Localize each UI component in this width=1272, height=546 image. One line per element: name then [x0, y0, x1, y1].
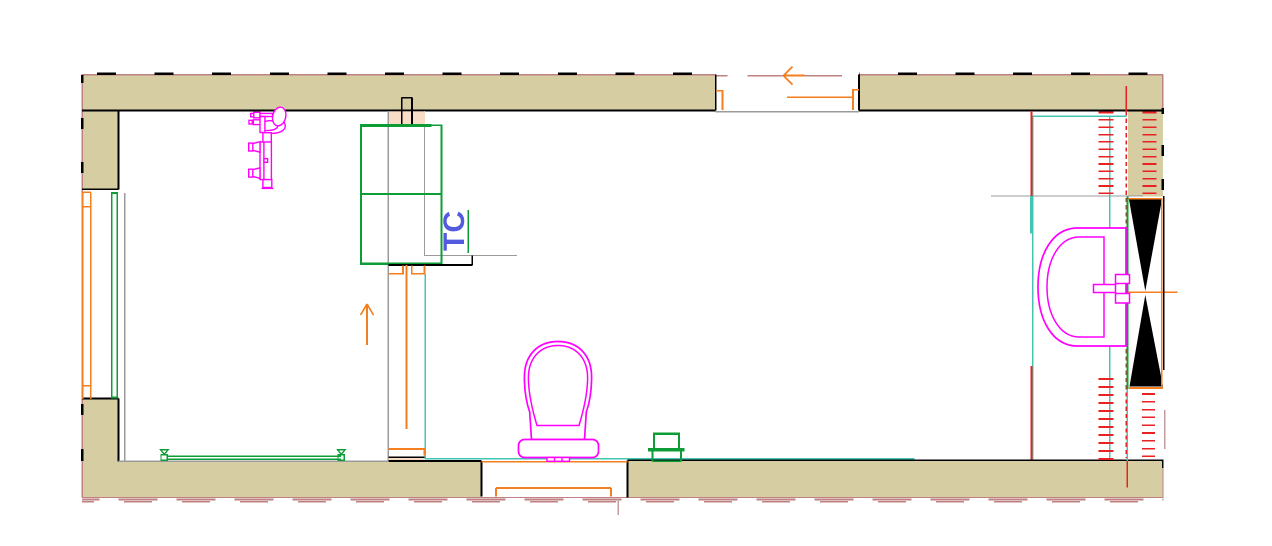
- svg-text:TC: TC: [438, 211, 471, 251]
